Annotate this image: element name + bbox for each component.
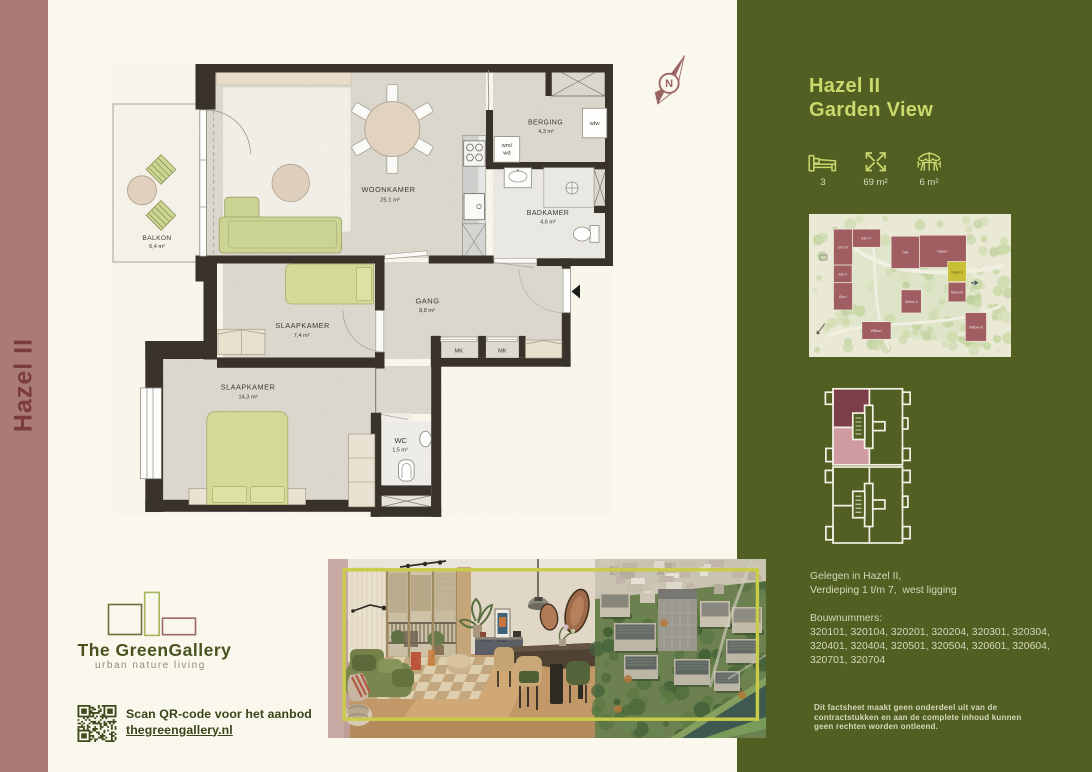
svg-text:Willow III: Willow III bbox=[969, 325, 983, 329]
svg-text:Elm III: Elm III bbox=[838, 246, 848, 250]
svg-text:wtw: wtw bbox=[589, 121, 601, 127]
svg-text:BADKAMER: BADKAMER bbox=[527, 210, 570, 217]
svg-text:SLAAPKAMER: SLAAPKAMER bbox=[275, 321, 329, 330]
svg-text:BALKON: BALKON bbox=[142, 235, 171, 242]
svg-text:wm/: wm/ bbox=[501, 143, 513, 149]
svg-text:4,3 m²: 4,3 m² bbox=[538, 129, 554, 135]
svg-text:BERGING: BERGING bbox=[528, 120, 563, 127]
svg-text:8,8 m²: 8,8 m² bbox=[419, 308, 435, 314]
svg-text:N: N bbox=[665, 78, 673, 90]
svg-text:GANG: GANG bbox=[415, 297, 439, 306]
svg-text:1,5 m²: 1,5 m² bbox=[392, 448, 407, 454]
svg-text:Willow II: Willow II bbox=[905, 300, 918, 304]
svg-text:Willow I: Willow I bbox=[871, 329, 883, 333]
svg-text:7,4 m²: 7,4 m² bbox=[294, 333, 310, 339]
svg-text:The GreenGallery: The GreenGallery bbox=[78, 640, 232, 660]
svg-text:MK: MK bbox=[454, 349, 463, 355]
svg-text:Elm IV: Elm IV bbox=[862, 237, 873, 241]
svg-text:WC: WC bbox=[394, 436, 407, 445]
svg-text:MK: MK bbox=[498, 349, 507, 355]
svg-text:4,6 m²: 4,6 m² bbox=[540, 220, 556, 226]
svg-text:SLAAPKAMER: SLAAPKAMER bbox=[221, 383, 275, 392]
svg-text:Hazel I: Hazel I bbox=[938, 250, 949, 254]
svg-text:Elm II: Elm II bbox=[838, 272, 847, 276]
svg-text:Oak: Oak bbox=[902, 251, 909, 255]
svg-text:Hazel III: Hazel III bbox=[951, 291, 963, 295]
svg-text:14,3 m²: 14,3 m² bbox=[239, 395, 258, 401]
svg-text:WOONKAMER: WOONKAMER bbox=[362, 185, 416, 194]
svg-text:Elm I: Elm I bbox=[839, 295, 847, 299]
svg-text:wd: wd bbox=[502, 151, 510, 157]
svg-text:25.1 m²: 25.1 m² bbox=[380, 198, 400, 204]
svg-text:Hazel II: Hazel II bbox=[951, 271, 963, 275]
svg-text:urban nature living: urban nature living bbox=[95, 660, 206, 671]
svg-text:6,4 m²: 6,4 m² bbox=[149, 244, 165, 250]
